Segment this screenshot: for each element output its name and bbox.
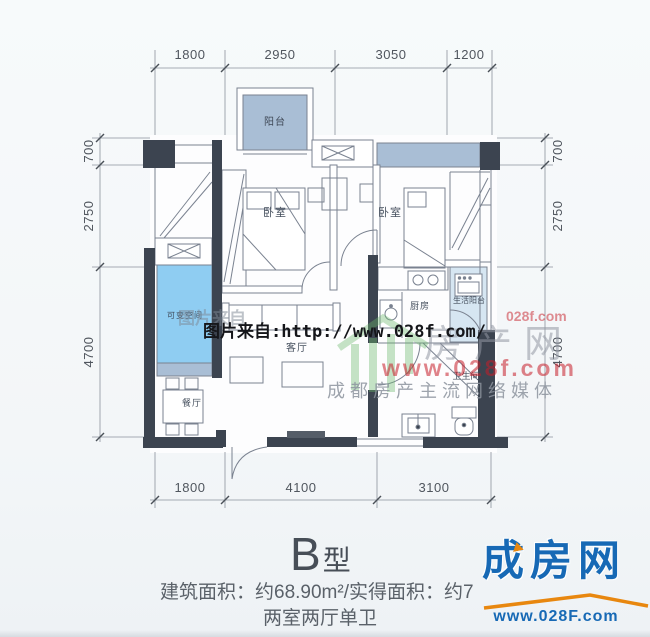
dimension-label: 2750 <box>81 184 95 248</box>
watermark-tagline: 成都房产主流网络媒体 <box>327 382 557 400</box>
room-label-service-balcony: 生活阳台 <box>449 297 489 305</box>
bed-icon <box>404 188 445 268</box>
room-label-balcony: 阳台 <box>253 118 297 128</box>
unit-type-suffix: 型 <box>323 547 351 575</box>
photo-bottom-edge <box>0 630 650 637</box>
dimension-label: 700 <box>550 119 564 183</box>
dimension-label: 4100 <box>269 480 333 494</box>
watermark-red-fragment: 028f.com <box>506 309 567 323</box>
room-label-bedroom-right: 卧室 <box>368 208 412 219</box>
bed-icon <box>243 188 305 270</box>
room-label-living-room: 客厅 <box>275 344 319 354</box>
dimension-label: 1800 <box>158 47 222 61</box>
dimension-label: 3050 <box>359 47 423 61</box>
room-label-dining-room: 餐厅 <box>170 399 214 408</box>
toilet-icon <box>452 407 476 435</box>
dimension-label: 4700 <box>81 320 95 384</box>
unit-type-title: B 型 <box>290 531 351 577</box>
window-icon <box>312 140 373 167</box>
bathroom-sink-icon <box>402 414 435 437</box>
washing-machine-icon <box>455 274 482 296</box>
dimension-label: 1200 <box>437 47 501 61</box>
dimension-label: 1800 <box>158 480 222 494</box>
dimension-label: 2950 <box>248 47 312 61</box>
stove-icon <box>408 271 445 290</box>
site-logo-text: 成房网 <box>482 540 626 582</box>
window-band-flexible-space <box>157 363 212 376</box>
dimension-label: 2750 <box>550 184 564 248</box>
dimension-label: 3100 <box>402 480 466 494</box>
dimension-label: 700 <box>81 119 95 183</box>
room-label-bedroom-left: 卧室 <box>253 208 297 219</box>
site-logo: 成房网 www.028F.com <box>482 540 650 632</box>
watermark-red-url: www.028f.com <box>382 357 577 380</box>
floorplan-page: 1800 2950 3050 1200 1800 4100 3100 700 2… <box>0 0 650 637</box>
window-icon <box>155 238 212 265</box>
layout-info: 两室两厅单卫 <box>160 603 480 630</box>
unit-type-letter: B <box>290 531 321 577</box>
area-info: 建筑面积：约68.90m²/实得面积：约7 <box>160 577 474 604</box>
watermark-caption: 图片来自:http://www.028f.com/ <box>203 324 486 341</box>
window-band-right-bedroom <box>377 143 480 167</box>
site-logo-url: www.028F.com <box>490 608 622 626</box>
